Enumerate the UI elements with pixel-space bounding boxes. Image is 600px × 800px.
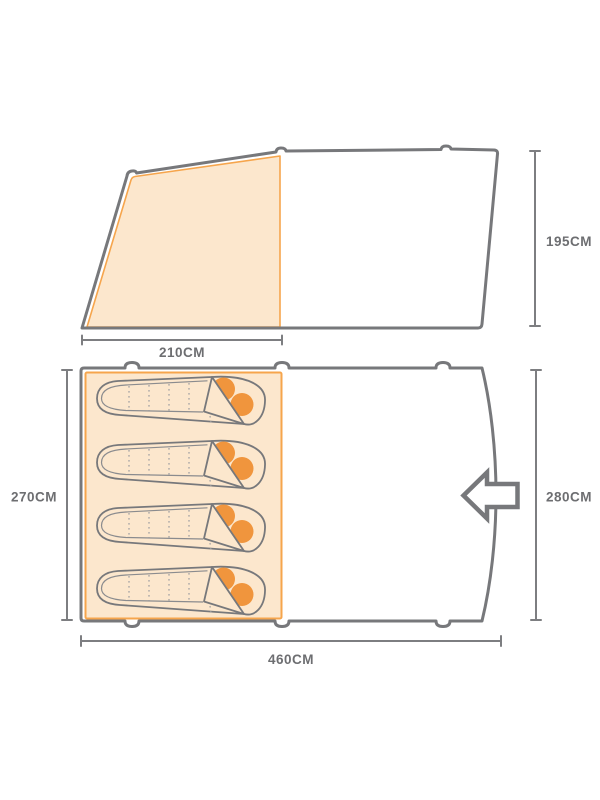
tent-floor-plan: [81, 363, 518, 627]
tent-dimensions-diagram: 210CM 195CM 270CM 280CM 460: [0, 0, 600, 800]
side-height-label: 195CM: [546, 234, 592, 249]
floor-width-label: 460CM: [268, 652, 314, 667]
side-height-dimension: [530, 151, 540, 326]
side-inner-width-dimension: [82, 336, 282, 345]
side-inner-width-label: 210CM: [159, 345, 205, 360]
side-inner-tent-area: [87, 156, 280, 327]
floor-inner-depth-dimension: [62, 370, 72, 620]
floor-inner-depth-label: 270CM: [11, 490, 57, 505]
diagram-svg: 210CM 195CM 270CM 280CM 460: [0, 0, 600, 800]
floor-depth-dimension: [531, 370, 541, 620]
floor-width-dimension: [81, 636, 501, 646]
floor-depth-label: 280CM: [546, 490, 592, 505]
tent-side-view: [82, 146, 498, 328]
